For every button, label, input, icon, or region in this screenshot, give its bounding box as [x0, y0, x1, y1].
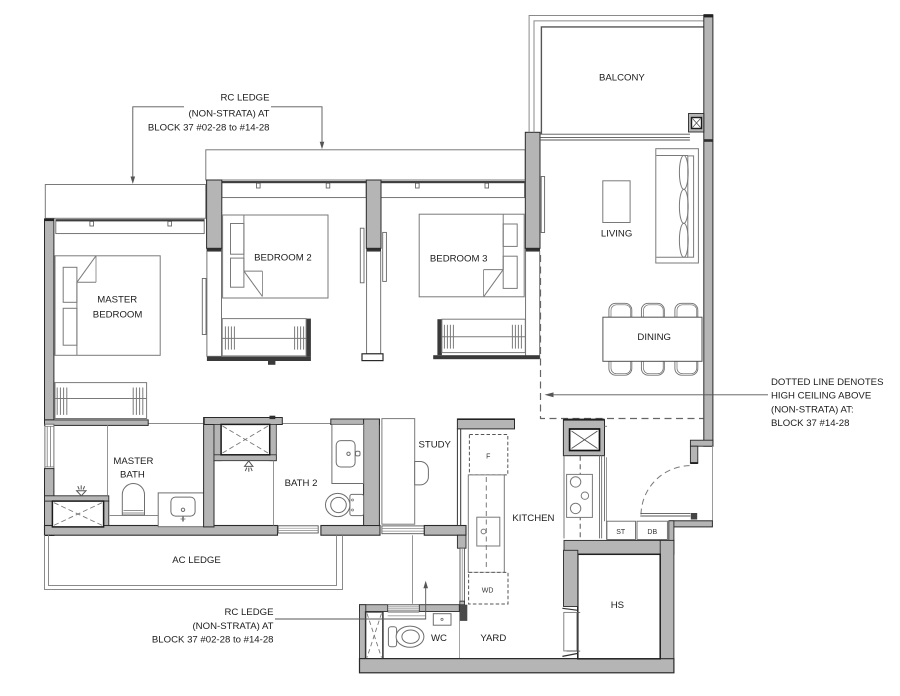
svg-text:RC LEDGE: RC LEDGE — [224, 607, 273, 618]
svg-text:KITCHEN: KITCHEN — [512, 513, 554, 524]
svg-text:YARD: YARD — [480, 633, 506, 644]
svg-text:(NON-STRATA) AT: (NON-STRATA) AT — [192, 621, 273, 632]
svg-text:WC: WC — [431, 633, 447, 644]
svg-text:LIVING: LIVING — [601, 228, 632, 239]
svg-text:(NON-STRATA) AT: (NON-STRATA) AT — [188, 108, 269, 119]
svg-text:BATH 2: BATH 2 — [285, 478, 318, 489]
svg-text:BLOCK 37 #02-28 to #14-28: BLOCK 37 #02-28 to #14-28 — [148, 123, 270, 134]
svg-text:STUDY: STUDY — [418, 440, 451, 451]
svg-text:BEDROOM: BEDROOM — [93, 309, 143, 320]
svg-text:HIGH CEILING ABOVE: HIGH CEILING ABOVE — [771, 391, 871, 402]
svg-text:DB: DB — [647, 529, 657, 536]
svg-text:ST: ST — [616, 529, 626, 536]
svg-text:BEDROOM 2: BEDROOM 2 — [254, 253, 312, 264]
svg-text:AC LEDGE: AC LEDGE — [172, 555, 221, 566]
svg-text:BLOCK 37 #14-28: BLOCK 37 #14-28 — [771, 418, 849, 429]
svg-text:BALCONY: BALCONY — [599, 73, 645, 84]
svg-text:BATH: BATH — [120, 469, 145, 480]
svg-text:DINING: DINING — [637, 332, 671, 343]
svg-text:DOTTED LINE DENOTES: DOTTED LINE DENOTES — [771, 377, 883, 388]
svg-text:(NON-STRATA) AT:: (NON-STRATA) AT: — [771, 404, 854, 415]
svg-text:F: F — [486, 453, 490, 460]
svg-text:BEDROOM 3: BEDROOM 3 — [430, 254, 488, 265]
svg-text:RC LEDGE: RC LEDGE — [220, 92, 269, 103]
svg-text:MASTER: MASTER — [113, 456, 153, 467]
svg-text:HS: HS — [611, 600, 624, 611]
svg-text:WD: WD — [482, 587, 494, 594]
svg-text:MASTER: MASTER — [97, 295, 137, 306]
svg-text:BLOCK 37 #02-28 to #14-28: BLOCK 37 #02-28 to #14-28 — [152, 634, 274, 645]
